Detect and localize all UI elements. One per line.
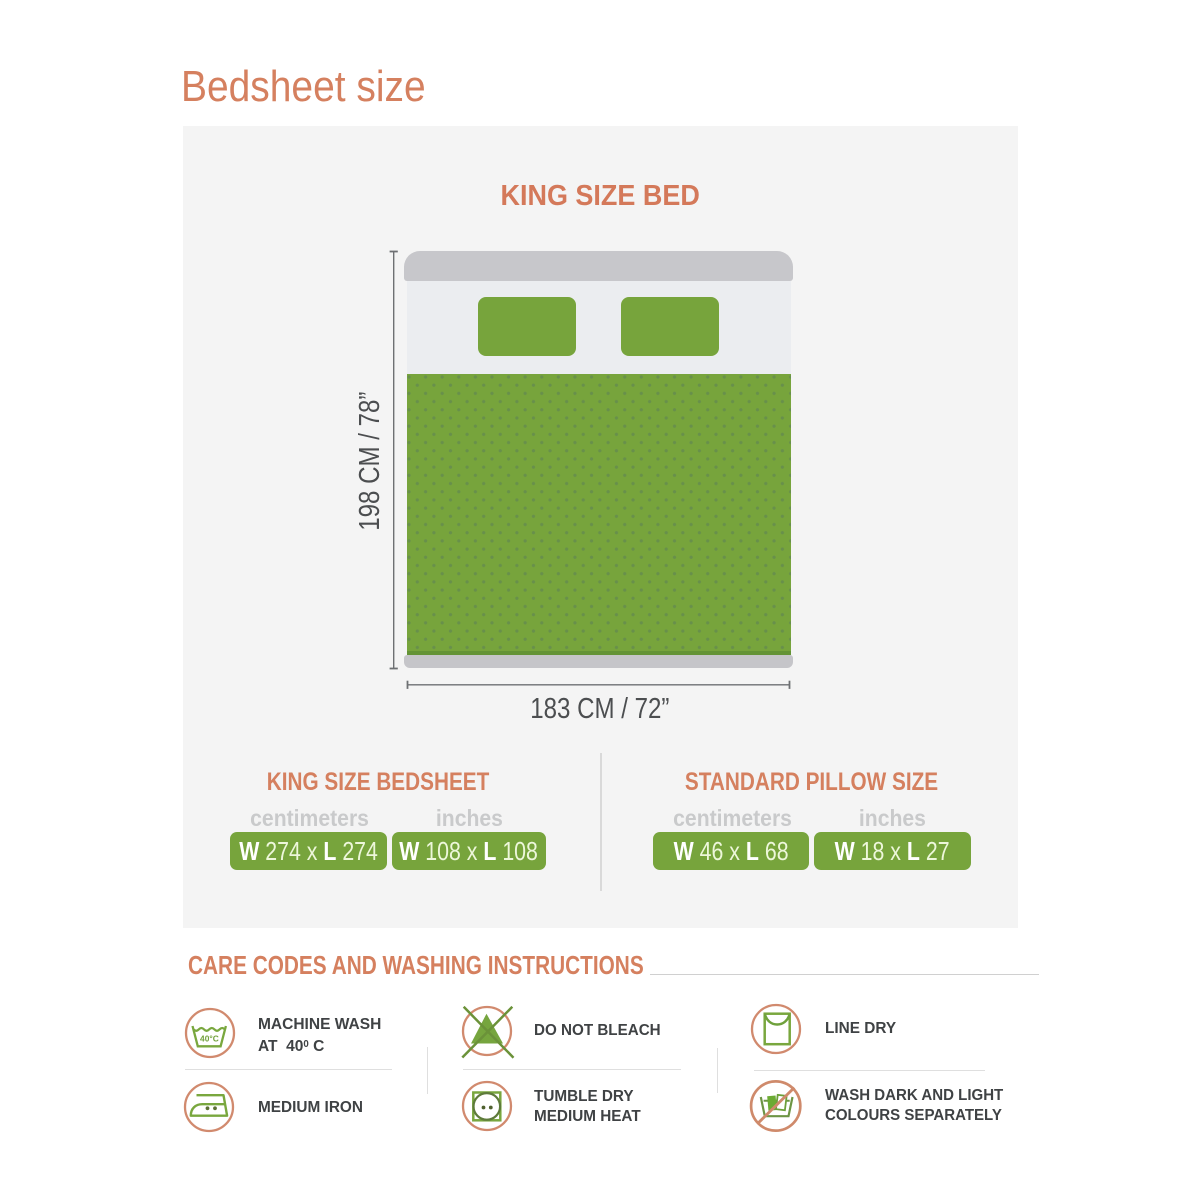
svg-text:40°C: 40°C xyxy=(200,1034,219,1044)
